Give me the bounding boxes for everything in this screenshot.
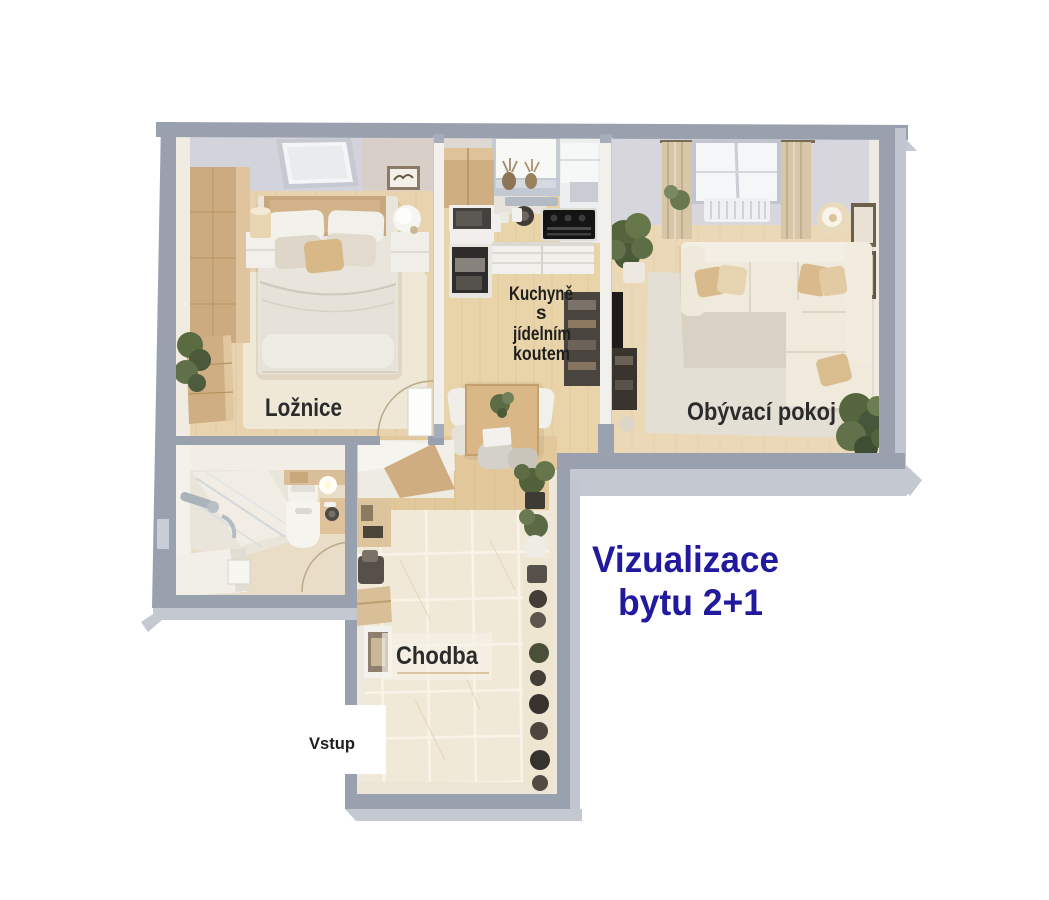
svg-text:Ložnice: Ložnice xyxy=(265,394,342,422)
svg-text:Chodba: Chodba xyxy=(396,642,479,670)
svg-text:Vstup: Vstup xyxy=(309,734,355,753)
svg-text:bytu 2+1: bytu 2+1 xyxy=(618,582,763,623)
svg-text:koutem: koutem xyxy=(513,344,570,365)
svg-text:Kuchyně: Kuchyně xyxy=(509,284,573,305)
svg-text:Vizualizace: Vizualizace xyxy=(592,539,779,580)
svg-text:jídelním: jídelním xyxy=(512,324,571,345)
svg-text:Obývací pokoj: Obývací pokoj xyxy=(687,398,836,426)
svg-text:s: s xyxy=(536,303,547,324)
